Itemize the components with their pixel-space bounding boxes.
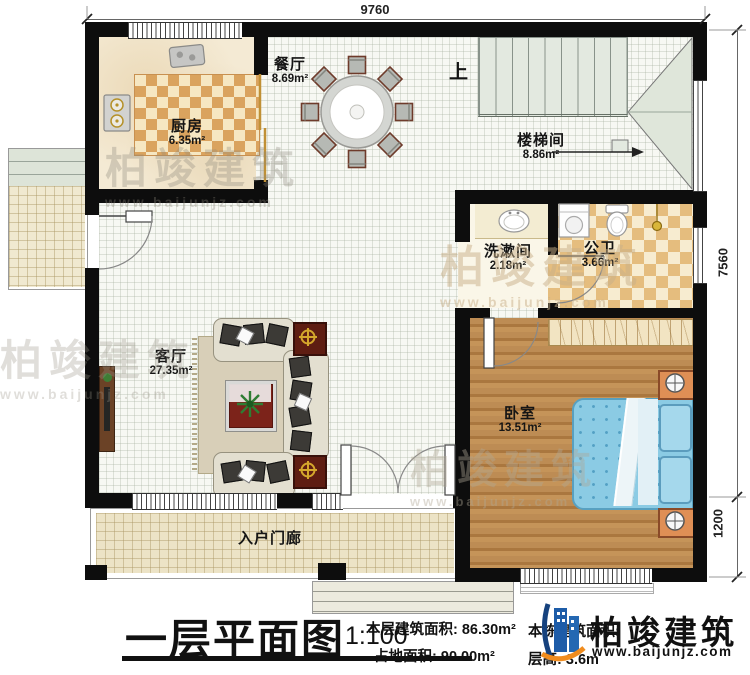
room-area: 27.35m² bbox=[116, 365, 226, 378]
stat-value: 86.30m² bbox=[462, 622, 516, 638]
porch-column-right bbox=[318, 563, 346, 580]
wall-left-lower bbox=[85, 268, 99, 508]
side-table-top bbox=[293, 322, 327, 356]
room-name: 楼梯间 bbox=[486, 132, 596, 149]
room-area: 3.66m² bbox=[555, 257, 645, 270]
room-name: 入户门廊 bbox=[200, 530, 340, 547]
room-label-dining: 餐厅 8.69m² bbox=[250, 56, 330, 86]
room-label-stairwell: 楼梯间 8.86m² bbox=[486, 132, 596, 162]
room-area: 2.18m² bbox=[458, 260, 558, 273]
tv-cabinet bbox=[99, 366, 115, 452]
wall-living-bottom-1 bbox=[85, 493, 132, 508]
room-name: 洗漱间 bbox=[458, 243, 558, 260]
window-bedroom-bottom bbox=[520, 568, 652, 584]
window-living-bottom-2 bbox=[312, 493, 343, 510]
stat-label: 本层建筑面积: bbox=[366, 622, 458, 638]
stat-value: 90.00m² bbox=[441, 649, 495, 665]
window-kitchen-top bbox=[128, 22, 242, 39]
room-label-bedroom: 卧室 13.51m² bbox=[465, 405, 575, 435]
plant-on-cabinet bbox=[103, 373, 112, 382]
nightstand-bottom bbox=[658, 508, 696, 538]
room-name: 客厅 bbox=[116, 348, 226, 365]
stairs-up-text: 上 bbox=[445, 62, 473, 84]
dim-right-lower-value: 1200 bbox=[711, 494, 726, 554]
brand-url: www.baijunjz.com bbox=[592, 644, 733, 659]
bedroom-window-sill bbox=[520, 583, 654, 594]
room-label-bathroom: 公卫 3.66m² bbox=[555, 240, 645, 270]
stat-floor-area: 本层建筑面积: 86.30m² bbox=[366, 618, 516, 639]
wall-kitchen-bottom bbox=[85, 189, 268, 203]
nightstand-top bbox=[658, 370, 696, 400]
room-name: 厨房 bbox=[132, 118, 242, 135]
coffee-table bbox=[225, 380, 277, 432]
side-porch-steps bbox=[9, 149, 85, 187]
sofa-bottom bbox=[213, 452, 295, 498]
room-label-washroom: 洗漱间 2.18m² bbox=[458, 243, 558, 273]
sofa-right bbox=[283, 350, 329, 460]
dim-line-top bbox=[87, 19, 705, 20]
bed-pillow-1 bbox=[659, 404, 692, 452]
window-stairwell-right bbox=[693, 80, 707, 192]
side-porch-floor bbox=[9, 186, 85, 287]
wall-living-bottom-2 bbox=[277, 493, 312, 508]
bed-pillow-2 bbox=[659, 456, 692, 504]
dim-right-upper-value: 7560 bbox=[716, 233, 731, 293]
washroom-counter bbox=[475, 204, 548, 239]
wall-bedroom-top-right bbox=[538, 308, 693, 318]
bedroom-wardrobe bbox=[548, 319, 695, 346]
wall-living-bottom-3 bbox=[453, 493, 470, 508]
stat-land-area: 占地面积: 90.00m² bbox=[374, 645, 495, 666]
brand-logo: 柏竣建筑 www.baijunjz.com bbox=[536, 598, 748, 670]
room-area: 13.51m² bbox=[465, 422, 575, 435]
room-name: 公卫 bbox=[555, 240, 645, 257]
logo-swoosh-blue bbox=[544, 604, 550, 656]
room-name: 卧室 bbox=[465, 405, 575, 422]
floor-plan-page: 9760 7560 1200 厨房 6.35m² 餐厅 8.69m² 楼梯间 8… bbox=[0, 0, 750, 675]
wall-left-upper bbox=[85, 22, 99, 215]
tv-screen bbox=[104, 387, 110, 431]
wall-bedroom-left bbox=[455, 308, 470, 582]
room-area: 8.69m² bbox=[250, 73, 330, 86]
room-label-porch: 入户门廊 bbox=[200, 530, 340, 547]
porch-column-left bbox=[85, 565, 107, 580]
dim-line-right bbox=[737, 30, 738, 577]
bed-sheet bbox=[638, 399, 658, 505]
side-porch bbox=[8, 148, 88, 290]
wall-washrooms-top bbox=[455, 190, 693, 204]
room-label-living: 客厅 27.35m² bbox=[116, 348, 226, 378]
room-label-kitchen: 厨房 6.35m² bbox=[132, 118, 242, 148]
window-bathroom-right bbox=[693, 227, 707, 284]
room-area: 6.35m² bbox=[132, 135, 242, 148]
side-table-bottom bbox=[293, 455, 327, 489]
room-name: 餐厅 bbox=[250, 56, 330, 73]
stairs-up-label: 上 bbox=[445, 62, 473, 84]
room-area: 8.86m² bbox=[486, 149, 596, 162]
brand-logo-icon bbox=[538, 600, 588, 664]
dim-top-value: 9760 bbox=[340, 2, 410, 17]
stairs-upper-flight bbox=[478, 37, 628, 117]
stat-label: 占地面积: bbox=[374, 649, 437, 665]
wall-washroom-left bbox=[455, 190, 470, 242]
window-living-bottom-1 bbox=[132, 493, 277, 510]
